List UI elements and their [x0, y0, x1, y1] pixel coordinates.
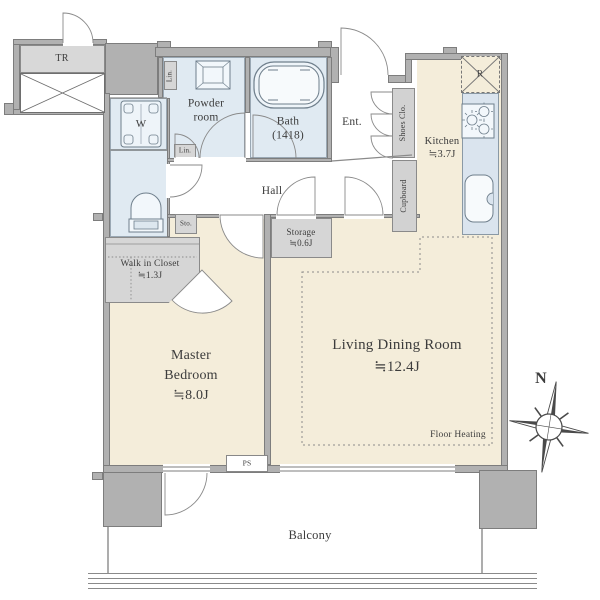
bedroom-door-arc: [220, 215, 263, 258]
shoes-closet-label: Shoes Clo.: [398, 105, 408, 142]
kitchen-label: Kitchen ≒3.7J: [425, 135, 460, 161]
living-dining-label: Living Dining Room ≒12.4J: [332, 334, 461, 378]
cupboard-label: Cupboard: [399, 179, 409, 212]
small-storage-label: Sto.: [180, 220, 192, 229]
pipe-space-label: PS: [243, 458, 252, 467]
bath-label: Bath (1418): [272, 115, 304, 144]
sink-icon: [465, 175, 493, 222]
compass-icon: [502, 375, 595, 478]
storage-door-arc: [277, 177, 315, 215]
trunk-room-label: TR: [55, 53, 68, 66]
shoes-door-arc: [371, 114, 393, 136]
storage-label: Storage ≒0.6J: [287, 227, 316, 250]
trunk-x-icon: [21, 74, 104, 112]
washer-label: W: [136, 118, 147, 132]
balcony-door-arc: [165, 473, 207, 515]
bathtub-icon: [254, 62, 324, 108]
toilet-door-arc: [170, 165, 202, 197]
shoes-door-arc: [371, 92, 393, 114]
entrance-label: Ent.: [342, 115, 362, 129]
compass-north-label: N: [535, 369, 547, 389]
master-bedroom-label: Master Bedroom ≒8.0J: [164, 346, 218, 406]
floor-heating-label: Floor Heating: [430, 430, 486, 442]
closet-door-arc: [172, 270, 232, 313]
refrigerator-label: R: [477, 68, 483, 79]
powder-room-label: Powder room: [188, 97, 224, 126]
walk-in-closet-label: Walk in Closet ≒1.3J: [120, 259, 179, 283]
vanity-icon: [196, 61, 230, 89]
balcony-openings: [163, 464, 455, 474]
stove-icon: [462, 103, 494, 139]
floorplan-linework: [0, 0, 600, 600]
toilet-icon: [129, 193, 163, 232]
balcony-label: Balcony: [288, 528, 331, 544]
living-door-arc: [345, 177, 383, 215]
shoes-door-arc: [371, 136, 393, 158]
floor-plan: TR W Lin. Lin. Sto. Powder room Bath (14…: [0, 0, 600, 600]
entrance-door-arc: [341, 28, 388, 75]
linen-top-label: Lin.: [166, 70, 175, 82]
hall-label: Hall: [262, 184, 283, 198]
linen-bottom-label: Lin.: [179, 147, 191, 156]
